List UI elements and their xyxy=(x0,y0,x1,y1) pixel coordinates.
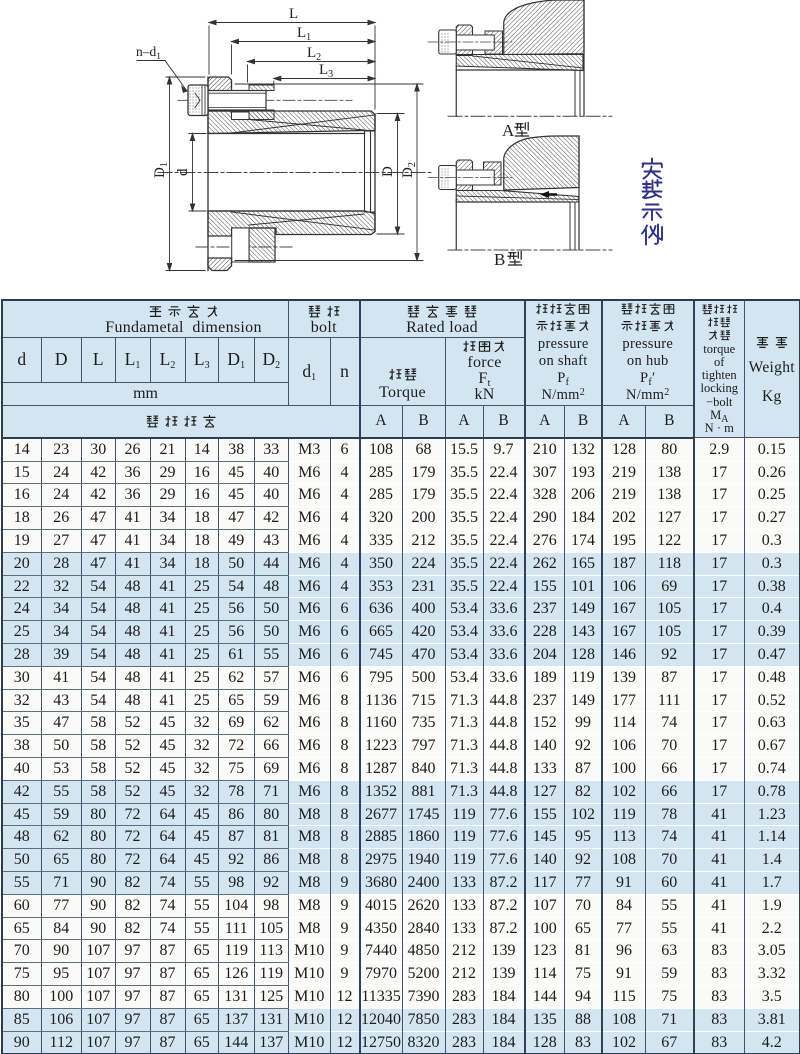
svg-text:L: L xyxy=(289,6,298,22)
svg-text:d: d xyxy=(175,168,191,176)
svg-text:L1: L1 xyxy=(297,25,311,43)
svg-text:A: A xyxy=(502,121,515,140)
svg-text:n–d1: n–d1 xyxy=(136,44,161,62)
svg-text:L3: L3 xyxy=(319,62,333,80)
svg-text:B: B xyxy=(494,250,505,269)
svg-text:D2: D2 xyxy=(400,162,418,178)
svg-text:D: D xyxy=(380,166,396,177)
svg-text:L2: L2 xyxy=(307,45,321,63)
svg-text:D1: D1 xyxy=(152,162,170,178)
